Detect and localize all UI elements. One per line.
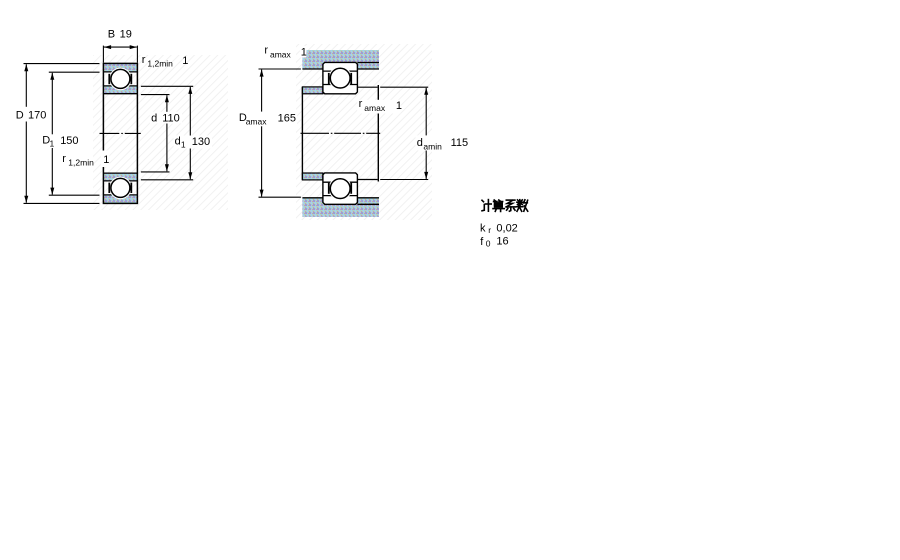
svg-text:r: r <box>62 153 66 165</box>
svg-text:16: 16 <box>496 236 508 248</box>
svg-text:115: 115 <box>451 137 469 149</box>
svg-text:130: 130 <box>192 136 210 148</box>
svg-text:1,2min: 1,2min <box>68 158 94 168</box>
svg-text:110: 110 <box>162 112 180 124</box>
svg-text:B: B <box>108 29 115 41</box>
svg-text:0,02: 0,02 <box>496 222 517 234</box>
svg-text:1: 1 <box>182 55 188 67</box>
svg-text:d: d <box>417 137 423 149</box>
svg-text:d: d <box>175 136 181 148</box>
svg-text:amax: amax <box>364 103 386 113</box>
svg-text:amax: amax <box>270 49 292 59</box>
svg-text:r: r <box>142 54 146 66</box>
svg-text:amax: amax <box>246 116 268 126</box>
svg-text:150: 150 <box>60 135 78 147</box>
svg-text:r: r <box>359 98 363 110</box>
svg-text:D: D <box>16 110 24 122</box>
svg-text:1: 1 <box>50 139 55 149</box>
svg-text:0: 0 <box>486 239 491 249</box>
svg-text:1: 1 <box>181 140 186 150</box>
svg-text:d: d <box>151 112 157 124</box>
svg-text:170: 170 <box>28 110 46 122</box>
svg-text:k: k <box>480 222 486 234</box>
svg-text:amin: amin <box>423 142 442 152</box>
svg-text:r: r <box>488 225 491 235</box>
svg-text:1: 1 <box>301 46 307 58</box>
svg-text:1: 1 <box>396 100 402 112</box>
svg-text:19: 19 <box>120 29 132 41</box>
svg-text:1,2min: 1,2min <box>147 59 173 69</box>
svg-text:165: 165 <box>278 112 296 124</box>
svg-text:r: r <box>264 44 268 56</box>
svg-text:1: 1 <box>103 154 109 166</box>
